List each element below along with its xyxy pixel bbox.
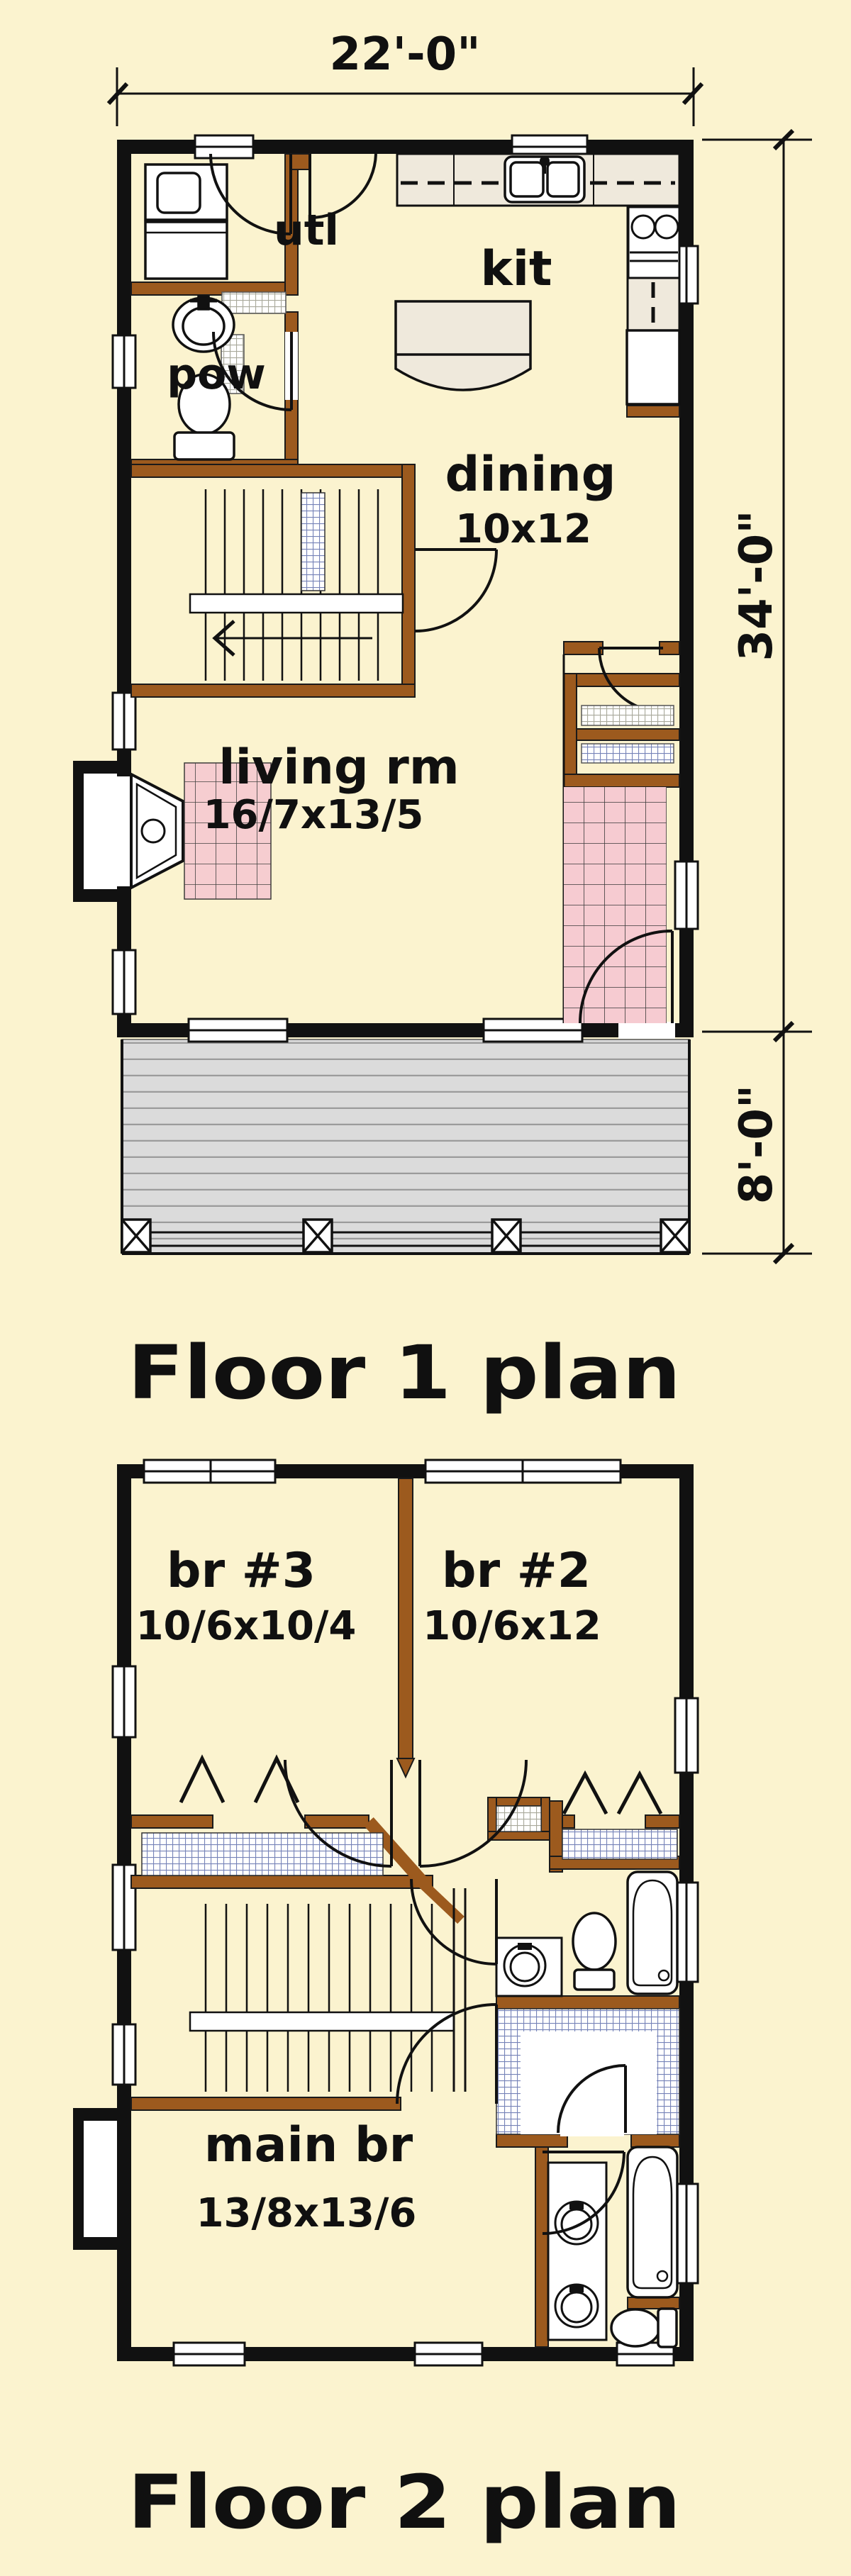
stair-rail bbox=[190, 2012, 454, 2031]
floor1-plan: 22'-0" 34'-0" 8'-0" bbox=[73, 28, 812, 1263]
stairs-icon bbox=[190, 489, 403, 681]
mudroom-tile bbox=[564, 787, 667, 1023]
kitchen-sink-icon bbox=[505, 156, 584, 202]
angled-rail bbox=[421, 1883, 461, 1920]
room-label-main: main br bbox=[204, 2117, 413, 2173]
hall-vanity-sink-icon bbox=[496, 1938, 562, 1996]
porch-deck bbox=[122, 1039, 689, 1254]
room-size-br3: 10/6x10/4 bbox=[136, 1603, 357, 1649]
closet-shelf-blue bbox=[562, 1829, 677, 1859]
room-size-living: 16/7x13/5 bbox=[204, 792, 424, 838]
wall-end-flare bbox=[397, 1758, 414, 1777]
stairs-icon bbox=[190, 1888, 465, 2092]
range-icon bbox=[628, 207, 679, 278]
closet-shelf-blue bbox=[582, 744, 674, 763]
closet-shelf-blue bbox=[142, 1833, 383, 1875]
room-label-dining: dining bbox=[445, 447, 616, 503]
porch-door-opening bbox=[618, 1022, 675, 1039]
room-size-main: 13/8x13/6 bbox=[196, 2190, 417, 2236]
dimension-porch-depth-label: 8'-0" bbox=[730, 1085, 783, 1205]
dimension-width-label: 22'-0" bbox=[329, 28, 480, 81]
powder-sink-icon bbox=[173, 296, 234, 352]
room-label-living: living rm bbox=[218, 740, 459, 796]
floor1-title: Floor 1 plan bbox=[128, 1329, 681, 1416]
main-toilet-icon bbox=[611, 2309, 677, 2347]
room-label-br2: br #2 bbox=[442, 1543, 591, 1599]
main-vanity-sinks-icon bbox=[548, 2163, 606, 2340]
floorplan-drawing: 22'-0" 34'-0" 8'-0" bbox=[0, 0, 851, 2576]
refrigerator-icon bbox=[627, 330, 679, 404]
hall-bathtub-icon bbox=[628, 1872, 677, 1994]
dimension-main-depth-label: 34'-0" bbox=[730, 510, 783, 661]
room-label-kitchen: kit bbox=[480, 241, 552, 297]
hall-tile-strip bbox=[222, 292, 286, 313]
room-label-utility: utl bbox=[274, 206, 339, 255]
floor2-plan: br #3 10/6x10/4 br #2 10/6x12 main br 13… bbox=[73, 1460, 698, 2365]
main-bathtub-icon bbox=[628, 2147, 677, 2297]
room-label-br3: br #3 bbox=[167, 1543, 316, 1599]
walkin-closet bbox=[496, 2009, 679, 2136]
chimney bbox=[73, 2108, 117, 2250]
room-size-br2: 10/6x12 bbox=[423, 1603, 601, 1649]
closet-shelf-gray bbox=[582, 706, 674, 725]
kitchen-island bbox=[396, 301, 530, 390]
room-label-powder: pow bbox=[167, 350, 266, 399]
floorplan-sheet: 22'-0" 34'-0" 8'-0" bbox=[0, 0, 851, 2576]
floor2-title: Floor 2 plan bbox=[128, 2459, 681, 2546]
stair-rail bbox=[190, 594, 403, 613]
understair-closet-door bbox=[301, 493, 325, 591]
room-size-dining: 10x12 bbox=[455, 506, 591, 552]
hall-toilet-icon bbox=[573, 1913, 616, 1990]
tub-foot-wall bbox=[628, 2297, 679, 2309]
